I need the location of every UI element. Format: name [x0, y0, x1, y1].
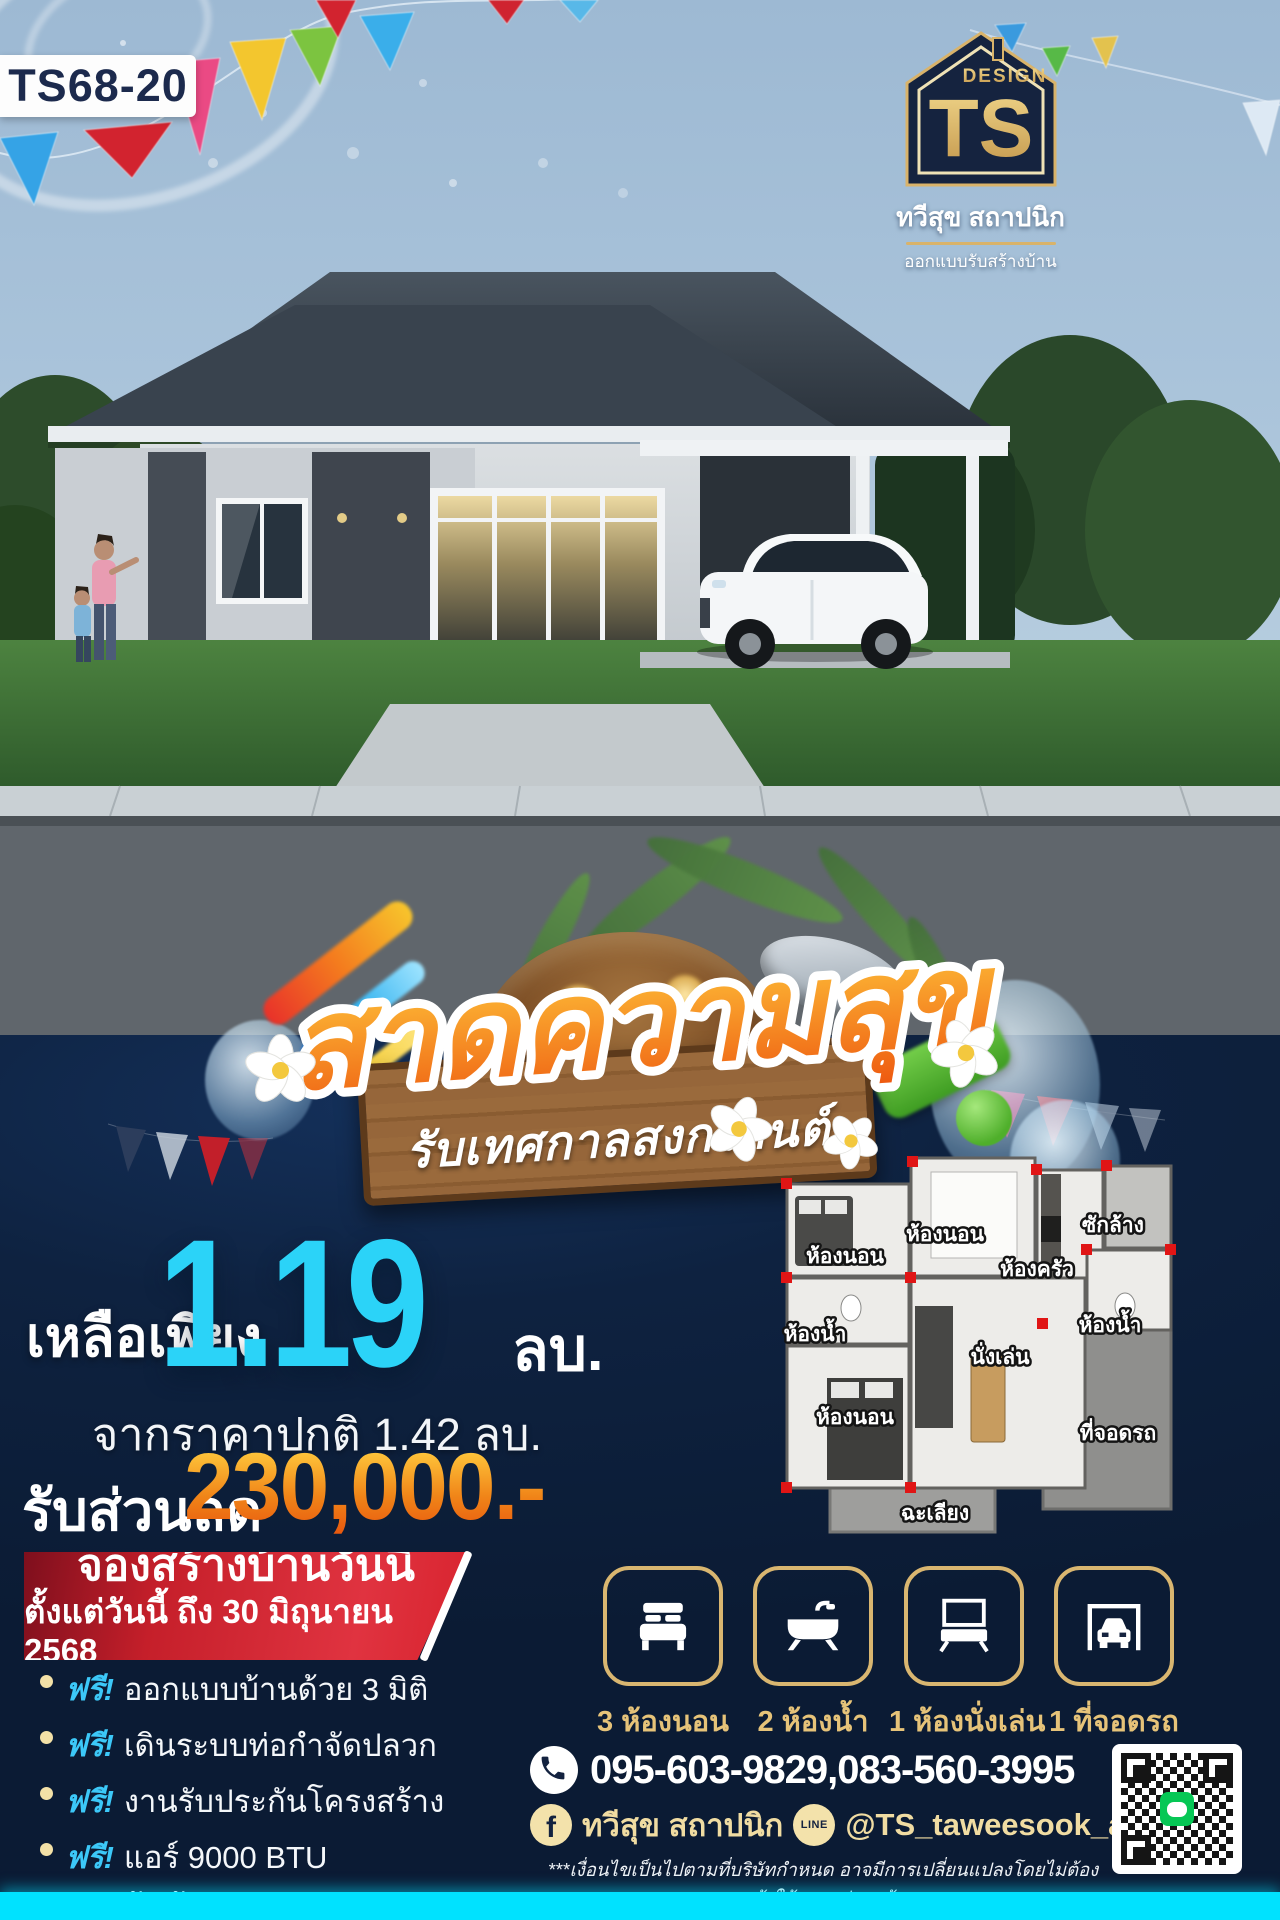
model-code-badge: TS68-20 — [0, 55, 196, 117]
room-label: ห้องนอน — [806, 1244, 885, 1268]
list-item: ฟรี!เดินระบบท่อกำจัดปลวก — [40, 1720, 520, 1770]
svg-text:TS: TS — [928, 83, 1033, 174]
booking-banner: จองสร้างบ้านวันนี้ ตั้งแต่วันนี้ ถึง 30 … — [24, 1552, 468, 1660]
feature-parking: 1 ที่จอดรถ — [1039, 1566, 1189, 1744]
phone-icon — [530, 1746, 578, 1794]
logo-tagline: ออกแบบรับสร้างบ้าน — [893, 248, 1068, 275]
line-qr-code — [1112, 1744, 1242, 1874]
free-text: งานรับประกันโครงสร้าง — [124, 1776, 444, 1826]
phone-numbers: 095-603-9829,083-560-3995 — [590, 1748, 1074, 1793]
campaign-headline: สาดความสุข — [284, 926, 1003, 1124]
plumeria-flower — [925, 1012, 1007, 1094]
bullet-dot-icon — [40, 1843, 53, 1856]
room-label: ซักล้าง — [1082, 1213, 1144, 1237]
qr-pattern — [1121, 1753, 1233, 1865]
logo-company-name: ทวีสุข สถาปนิก — [893, 197, 1068, 238]
social-contact: f ทวีสุข สถาปนิก LINE @TS_taweesook_arch — [530, 1800, 1174, 1850]
price-value: 1.19 — [158, 1212, 422, 1394]
line-icon: LINE — [793, 1804, 835, 1846]
discount-value: 230,000.- — [184, 1440, 544, 1535]
free-text: เดินระบบท่อกำจัดปลวก — [124, 1720, 437, 1770]
promo-poster: TS68-20 DESIGN TS ทวีสุข สถาปนิก ออกแบบร… — [0, 0, 1280, 1920]
free-tag: ฟรี! — [65, 1776, 114, 1826]
stone-pillar-wide — [312, 452, 430, 660]
room-label: ห้องน้ำ — [1079, 1309, 1142, 1337]
left-window — [216, 498, 308, 604]
qr-finder — [1203, 1753, 1233, 1783]
room-label: ที่จอดรถ — [1080, 1417, 1156, 1445]
room-label: ห้องน้ำ — [784, 1318, 847, 1346]
sidewalk — [0, 786, 1280, 816]
floor-plan: ห้องนอน ห้องนอน ซักล้าง ห้องครัว ห้องน้ำ… — [735, 1156, 1181, 1554]
feature-bathrooms: 2 ห้องน้ำ — [738, 1566, 888, 1744]
facebook-icon: f — [530, 1804, 572, 1846]
phone-contact: 095-603-9829,083-560-3995 — [530, 1746, 1074, 1794]
living-icon — [904, 1566, 1024, 1686]
logo-divider — [906, 242, 1056, 245]
list-item: ฟรี!งานรับประกันโครงสร้าง — [40, 1776, 520, 1826]
facebook-name: ทวีสุข สถาปนิก — [582, 1800, 783, 1850]
room-label: ฉะเลียง — [901, 1501, 969, 1525]
feature-bedrooms: 3 ห้องนอน — [588, 1566, 738, 1744]
booking-period: ตั้งแต่วันนี้ ถึง 30 มิถุนายน 2568 — [24, 1592, 468, 1671]
ts-house-logo-icon: DESIGN TS — [901, 30, 1061, 188]
line-logo-chip — [1160, 1792, 1194, 1826]
freebies-list: ฟรี!ออกแบบบ้านด้วย 3 มิติ ฟรี!เดินระบบท่… — [40, 1664, 520, 1920]
free-text: ออกแบบบ้านด้วย 3 มิติ — [124, 1664, 428, 1714]
price-unit: ลบ. — [512, 1302, 604, 1397]
free-tag: ฟรี! — [65, 1720, 114, 1770]
walkway — [335, 704, 765, 788]
qr-finder — [1121, 1753, 1151, 1783]
feature-label: 2 ห้องน้ำ — [738, 1698, 888, 1744]
plumeria-flower — [238, 1028, 323, 1113]
free-text: แอร์ 9000 BTU — [124, 1832, 327, 1882]
list-item: ฟรี!แอร์ 9000 BTU — [40, 1832, 520, 1882]
feature-label: 3 ห้องนอน — [588, 1698, 738, 1744]
room-label: ห้องครัว — [1000, 1257, 1074, 1281]
feature-label: 1 ที่จอดรถ — [1039, 1698, 1189, 1744]
room-label: นั่งเล่น — [970, 1341, 1030, 1369]
room-label: ห้องนอน — [816, 1405, 895, 1429]
bath-icon — [753, 1566, 873, 1686]
bullet-dot-icon — [40, 1787, 53, 1800]
carport-beam — [640, 440, 1008, 456]
list-item: ฟรี!ออกแบบบ้านด้วย 3 มิติ — [40, 1664, 520, 1714]
fascia — [48, 426, 1010, 442]
bottom-accent-bar — [0, 1892, 1280, 1920]
bed-icon — [603, 1566, 723, 1686]
bullet-dot-icon — [40, 1731, 53, 1744]
qr-finder — [1121, 1835, 1151, 1865]
sliding-glass-doors — [430, 488, 665, 654]
free-tag: ฟรี! — [65, 1832, 114, 1882]
model-code: TS68-20 — [8, 60, 188, 112]
feature-living-room: 1 ห้องนั่งเล่น — [889, 1566, 1039, 1744]
feature-label: 1 ห้องนั่งเล่น — [889, 1698, 1039, 1744]
bullet-dot-icon — [40, 1675, 53, 1688]
room-label: ห้องนอน — [906, 1222, 985, 1246]
stone-pillar — [148, 452, 206, 660]
free-tag: ฟรี! — [65, 1664, 114, 1714]
car-icon — [1054, 1566, 1174, 1686]
company-logo: DESIGN TS ทวีสุข สถาปนิก ออกแบบรับสร้างบ… — [893, 30, 1068, 275]
